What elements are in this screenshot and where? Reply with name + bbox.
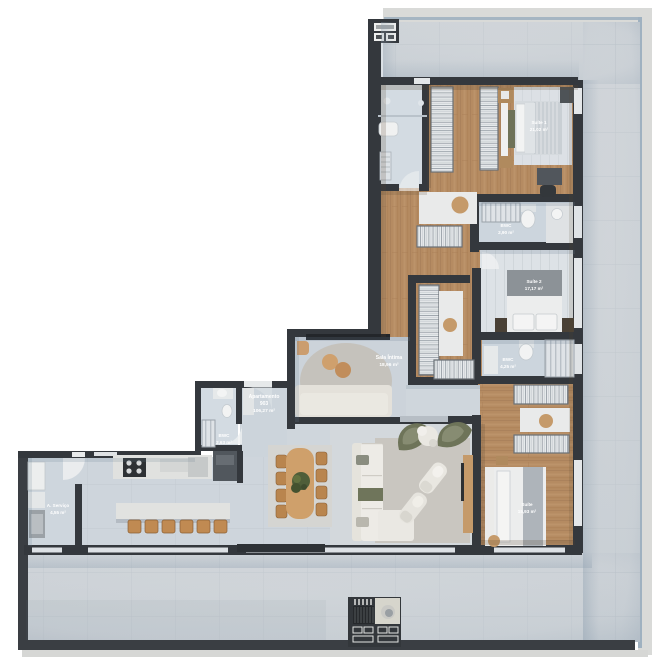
svg-text:4,25 m²: 4,25 m²	[500, 364, 516, 369]
svg-text:2,90 m²: 2,90 m²	[498, 230, 514, 235]
svg-text:Suíte: Suíte	[521, 502, 533, 507]
svg-text:4,55 m²: 4,55 m²	[50, 510, 66, 515]
svg-text:15,93 m²: 15,93 m²	[518, 509, 537, 514]
svg-text:106,27 m²: 106,27 m²	[253, 408, 275, 414]
svg-text:21,02 m²: 21,02 m²	[530, 127, 549, 132]
svg-text:BWC: BWC	[503, 357, 515, 362]
svg-text:Suíte 2: Suíte 2	[526, 279, 542, 284]
svg-text:BWC: BWC	[501, 223, 513, 228]
svg-text:Sala Íntima: Sala Íntima	[376, 353, 403, 361]
svg-text:2,63 m²: 2,63 m²	[216, 440, 232, 445]
svg-text:903: 903	[260, 401, 269, 407]
svg-text:A. Serviço: A. Serviço	[47, 503, 70, 508]
svg-text:Apartamento: Apartamento	[249, 394, 280, 400]
svg-text:18,96 m²: 18,96 m²	[379, 362, 399, 368]
svg-text:BWC: BWC	[219, 433, 231, 438]
svg-text:Suíte 1: Suíte 1	[531, 120, 547, 125]
svg-text:17,17 m²: 17,17 m²	[525, 286, 544, 291]
